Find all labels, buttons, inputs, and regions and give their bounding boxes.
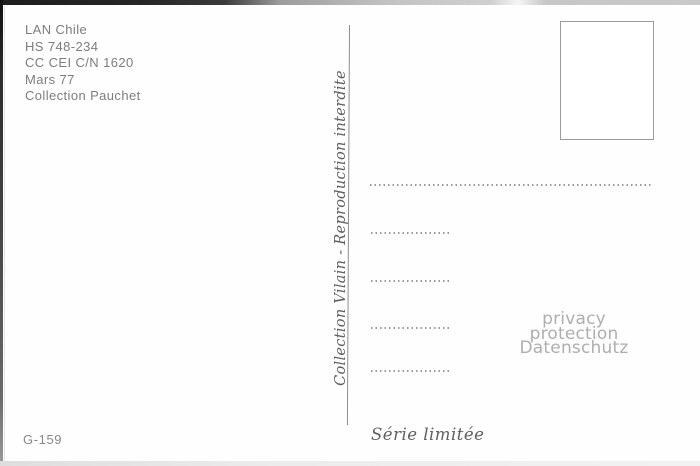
address-line-2 xyxy=(371,232,450,234)
scan-edge-left xyxy=(0,0,3,466)
publisher-line-aircraft: HS 748-234 xyxy=(25,39,141,56)
publisher-line-registration: CC CEI C/N 1620 xyxy=(25,55,141,72)
publisher-line-date: Mars 77 xyxy=(25,72,141,89)
address-line-1 xyxy=(370,184,652,186)
stamp-box xyxy=(560,21,654,140)
publisher-line-airline: LAN Chile xyxy=(25,22,141,39)
privacy-watermark-line1: privacy protection xyxy=(498,312,650,341)
series-label: Série limitée xyxy=(371,425,484,444)
address-line-4 xyxy=(371,327,450,329)
privacy-watermark: privacy protection Datenschutz xyxy=(498,312,650,356)
privacy-watermark-line2: Datenschutz xyxy=(498,341,650,356)
publisher-line-collection: Collection Pauchet xyxy=(25,88,141,105)
address-line-5 xyxy=(371,370,450,372)
catalog-number: G-159 xyxy=(23,432,62,447)
scan-edge-bottom xyxy=(0,461,700,466)
address-line-3 xyxy=(371,280,450,282)
scan-edge-top xyxy=(0,0,700,5)
scan-edge-left-faint xyxy=(4,6,5,461)
postcard-back-scan: LAN Chile HS 748-234 CC CEI C/N 1620 Mar… xyxy=(0,0,700,466)
publisher-block: LAN Chile HS 748-234 CC CEI C/N 1620 Mar… xyxy=(25,22,141,105)
